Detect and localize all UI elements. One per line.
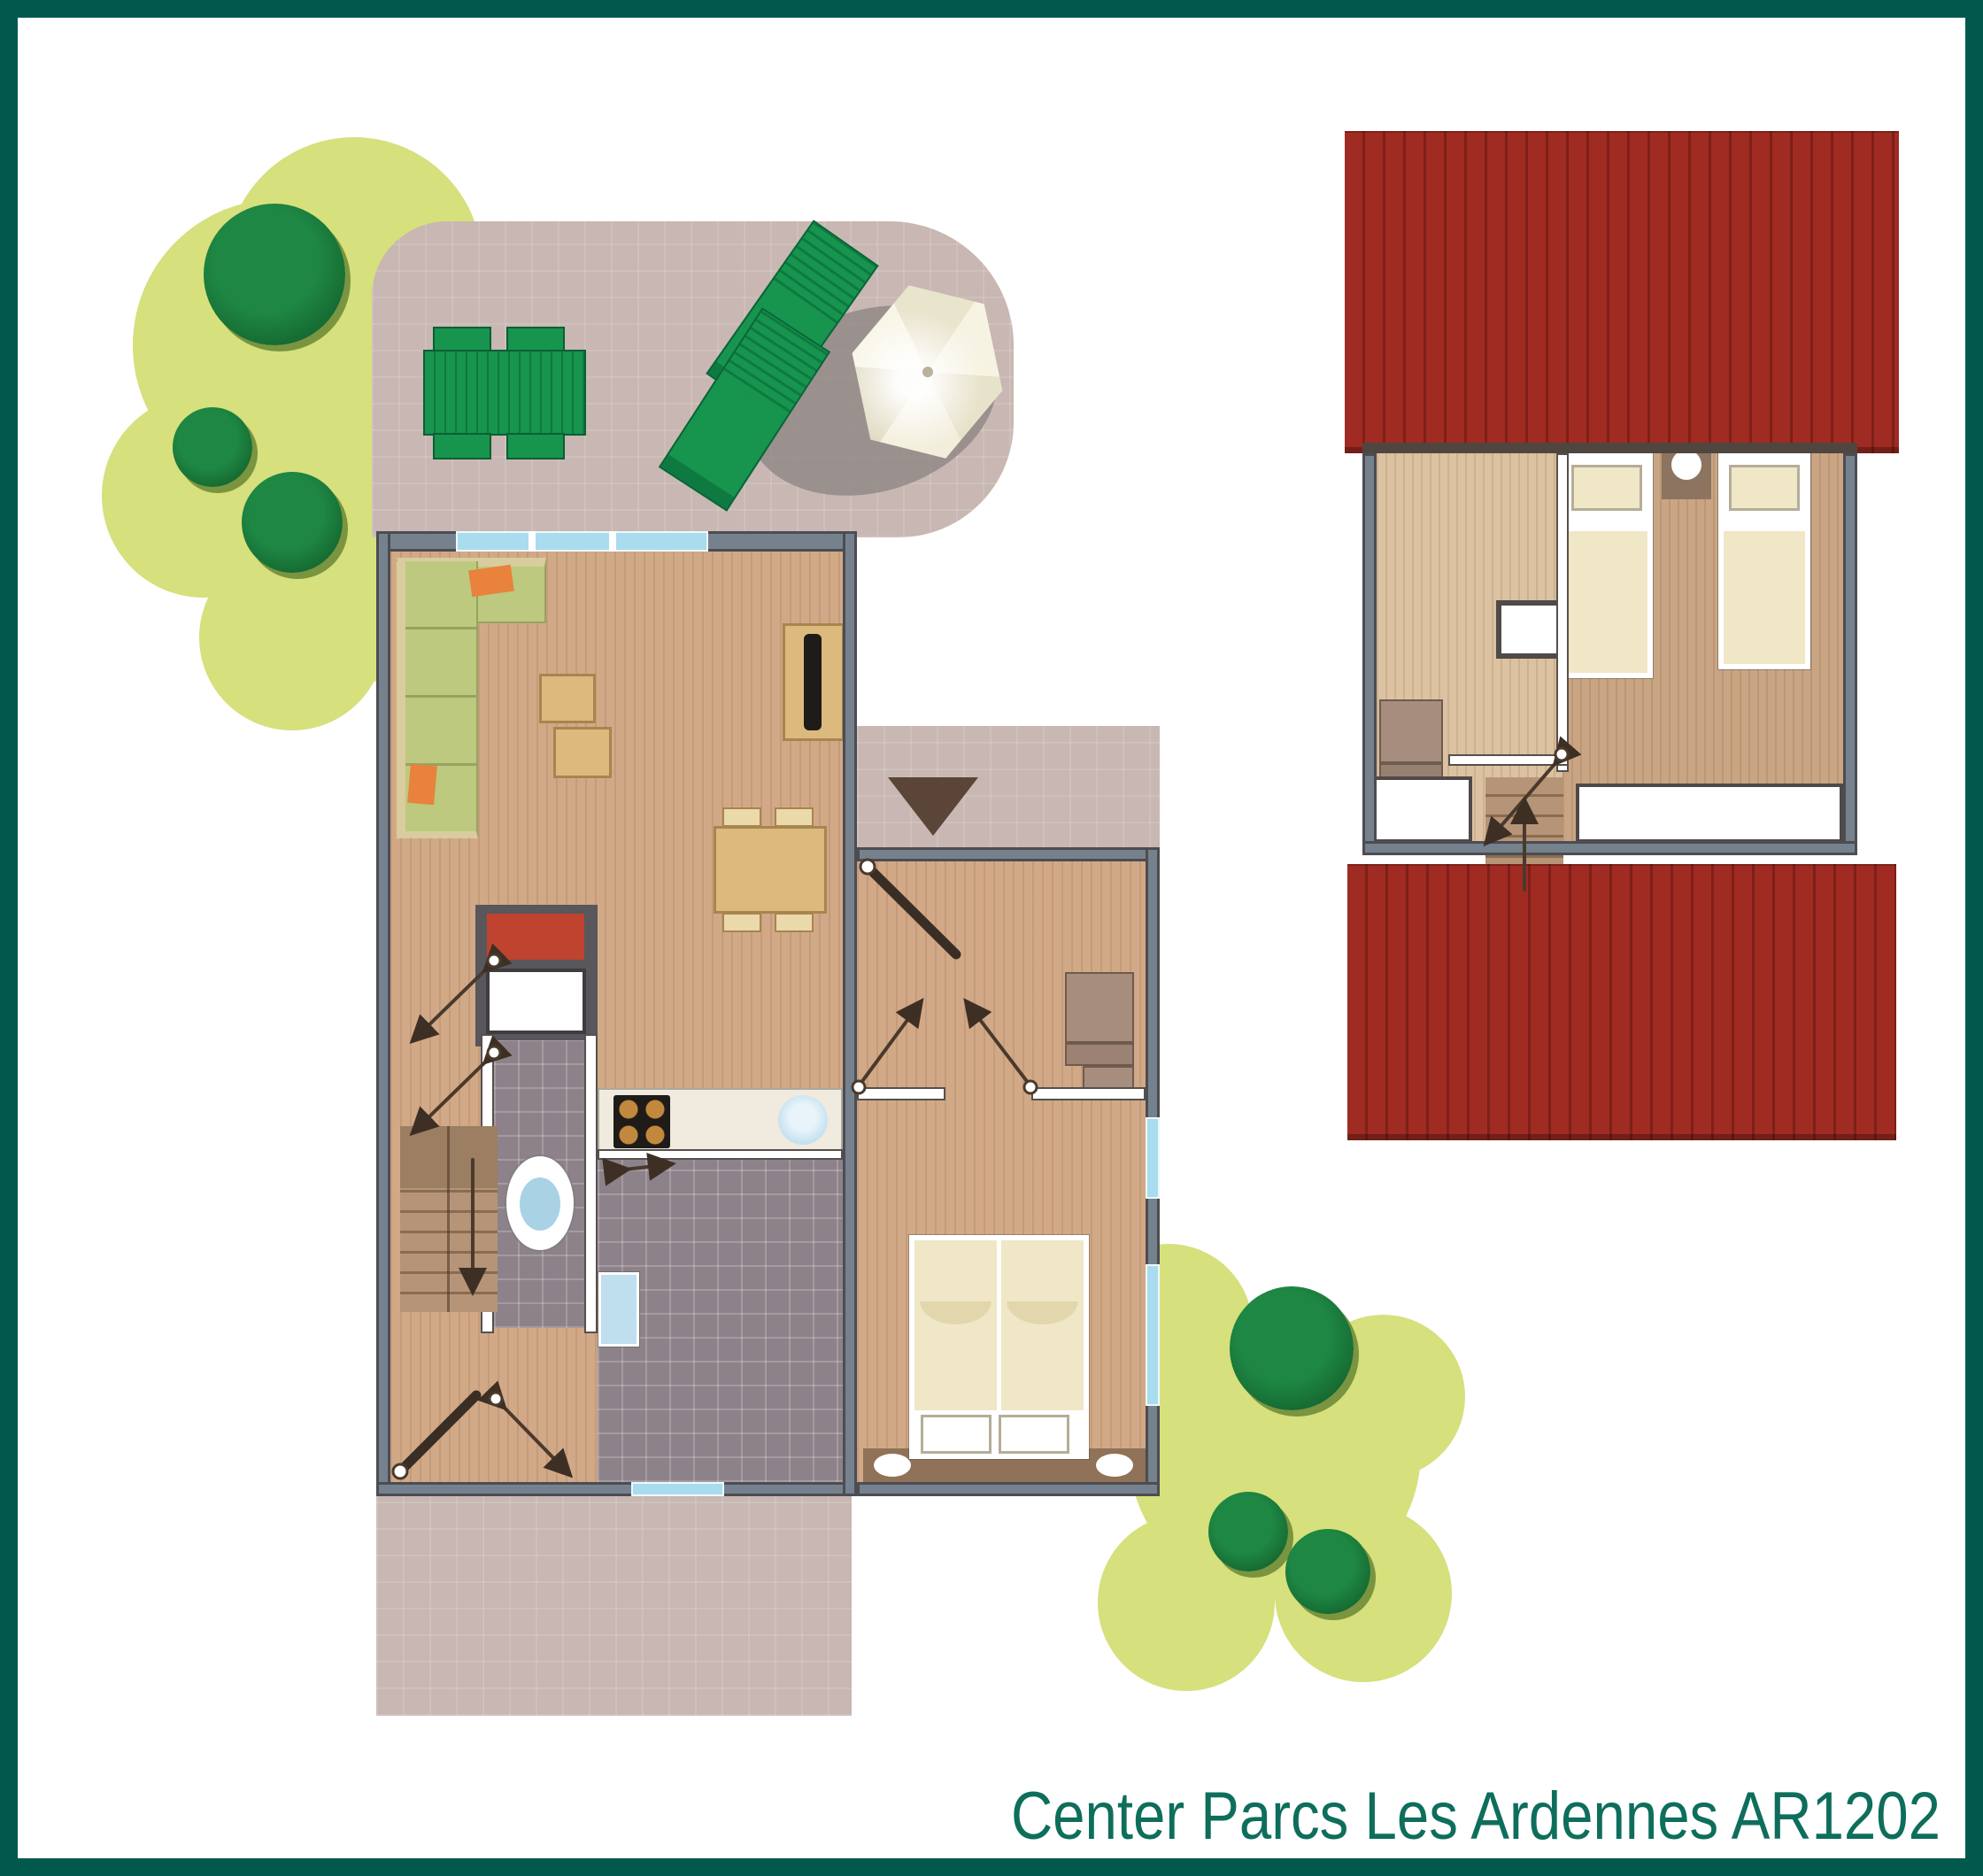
floorplan-page: Center Parcs Les Ardennes AR1202 [0,0,1983,1876]
caption-title: Center Parcs Les Ardennes AR1202 [1011,1778,1941,1855]
doors-and-arrows-overlay [0,0,1983,1876]
